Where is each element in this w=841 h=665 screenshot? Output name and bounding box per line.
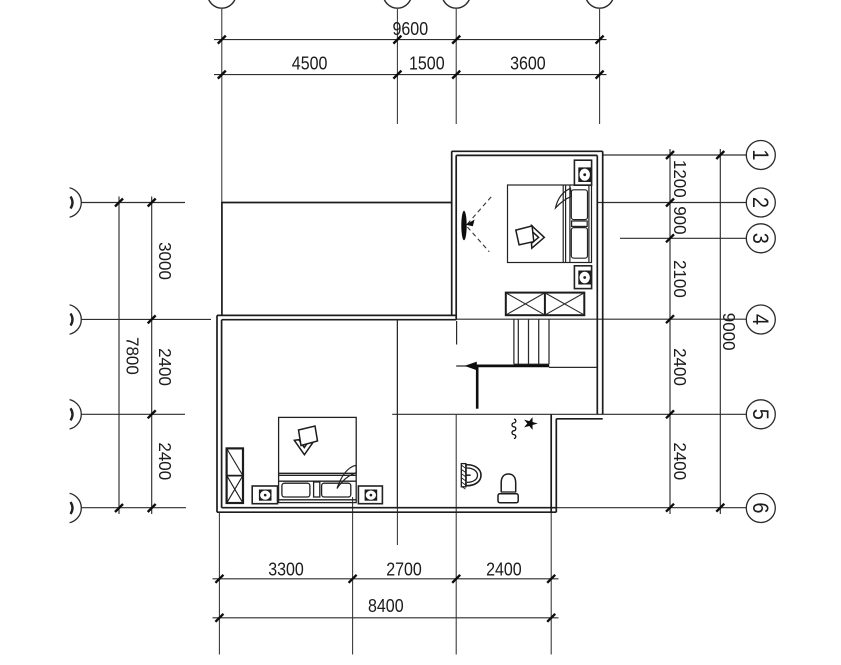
svg-text:7800: 7800 bbox=[122, 337, 142, 375]
svg-text:900: 900 bbox=[670, 206, 690, 235]
svg-text:2400: 2400 bbox=[670, 348, 690, 386]
svg-text:5: 5 bbox=[748, 409, 772, 420]
svg-text:6: 6 bbox=[748, 502, 772, 513]
svg-text:2400: 2400 bbox=[486, 558, 522, 579]
svg-text:3600: 3600 bbox=[510, 53, 546, 74]
svg-text:4: 4 bbox=[748, 314, 772, 325]
svg-text:3300: 3300 bbox=[268, 558, 304, 579]
svg-text:1: 1 bbox=[748, 149, 772, 160]
svg-text:2: 2 bbox=[748, 197, 772, 208]
svg-text:8400: 8400 bbox=[368, 595, 404, 616]
svg-text:2400: 2400 bbox=[155, 348, 175, 386]
svg-text:9000: 9000 bbox=[719, 313, 739, 351]
svg-text:3: 3 bbox=[748, 233, 772, 244]
svg-text:1200: 1200 bbox=[670, 160, 690, 198]
svg-text:2100: 2100 bbox=[670, 260, 690, 298]
svg-text:4500: 4500 bbox=[292, 53, 328, 74]
svg-text:2400: 2400 bbox=[155, 442, 175, 480]
svg-text:3000: 3000 bbox=[155, 242, 175, 280]
svg-text:2400: 2400 bbox=[670, 442, 690, 480]
svg-text:9600: 9600 bbox=[393, 18, 429, 39]
svg-text:1500: 1500 bbox=[409, 53, 445, 74]
svg-text:2700: 2700 bbox=[386, 558, 422, 579]
